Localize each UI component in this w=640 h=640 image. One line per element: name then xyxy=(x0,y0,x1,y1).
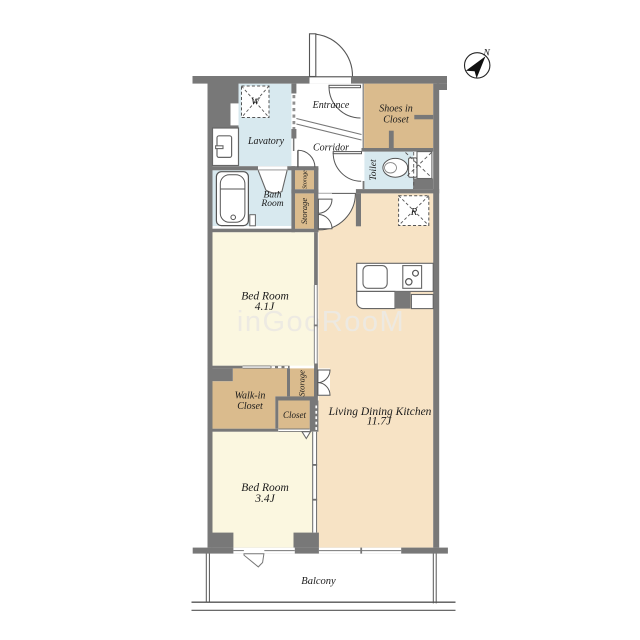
svg-text:Corridor: Corridor xyxy=(313,143,349,154)
svg-text:Closet: Closet xyxy=(283,410,307,420)
svg-text:3.4J: 3.4J xyxy=(254,493,275,505)
svg-text:Storage: Storage xyxy=(303,170,309,189)
svg-text:Lavatory: Lavatory xyxy=(247,136,285,147)
svg-text:4.1J: 4.1J xyxy=(255,301,275,313)
svg-text:Entrance: Entrance xyxy=(312,100,350,111)
svg-text:Toilet: Toilet xyxy=(369,159,379,181)
svg-text:Shoes in: Shoes in xyxy=(379,104,413,115)
svg-text:Closet: Closet xyxy=(383,115,409,126)
svg-text:Storage: Storage xyxy=(297,370,307,397)
svg-text:N: N xyxy=(483,49,491,59)
svg-text:Storage: Storage xyxy=(299,198,309,225)
svg-text:11.7J: 11.7J xyxy=(367,416,392,428)
svg-text:W: W xyxy=(251,97,261,108)
svg-text:R: R xyxy=(410,207,418,218)
svg-text:Balcony: Balcony xyxy=(301,576,336,587)
svg-text:Closet: Closet xyxy=(237,401,263,412)
svg-text:Walk-in: Walk-in xyxy=(235,391,266,402)
svg-text:Room: Room xyxy=(260,199,283,209)
